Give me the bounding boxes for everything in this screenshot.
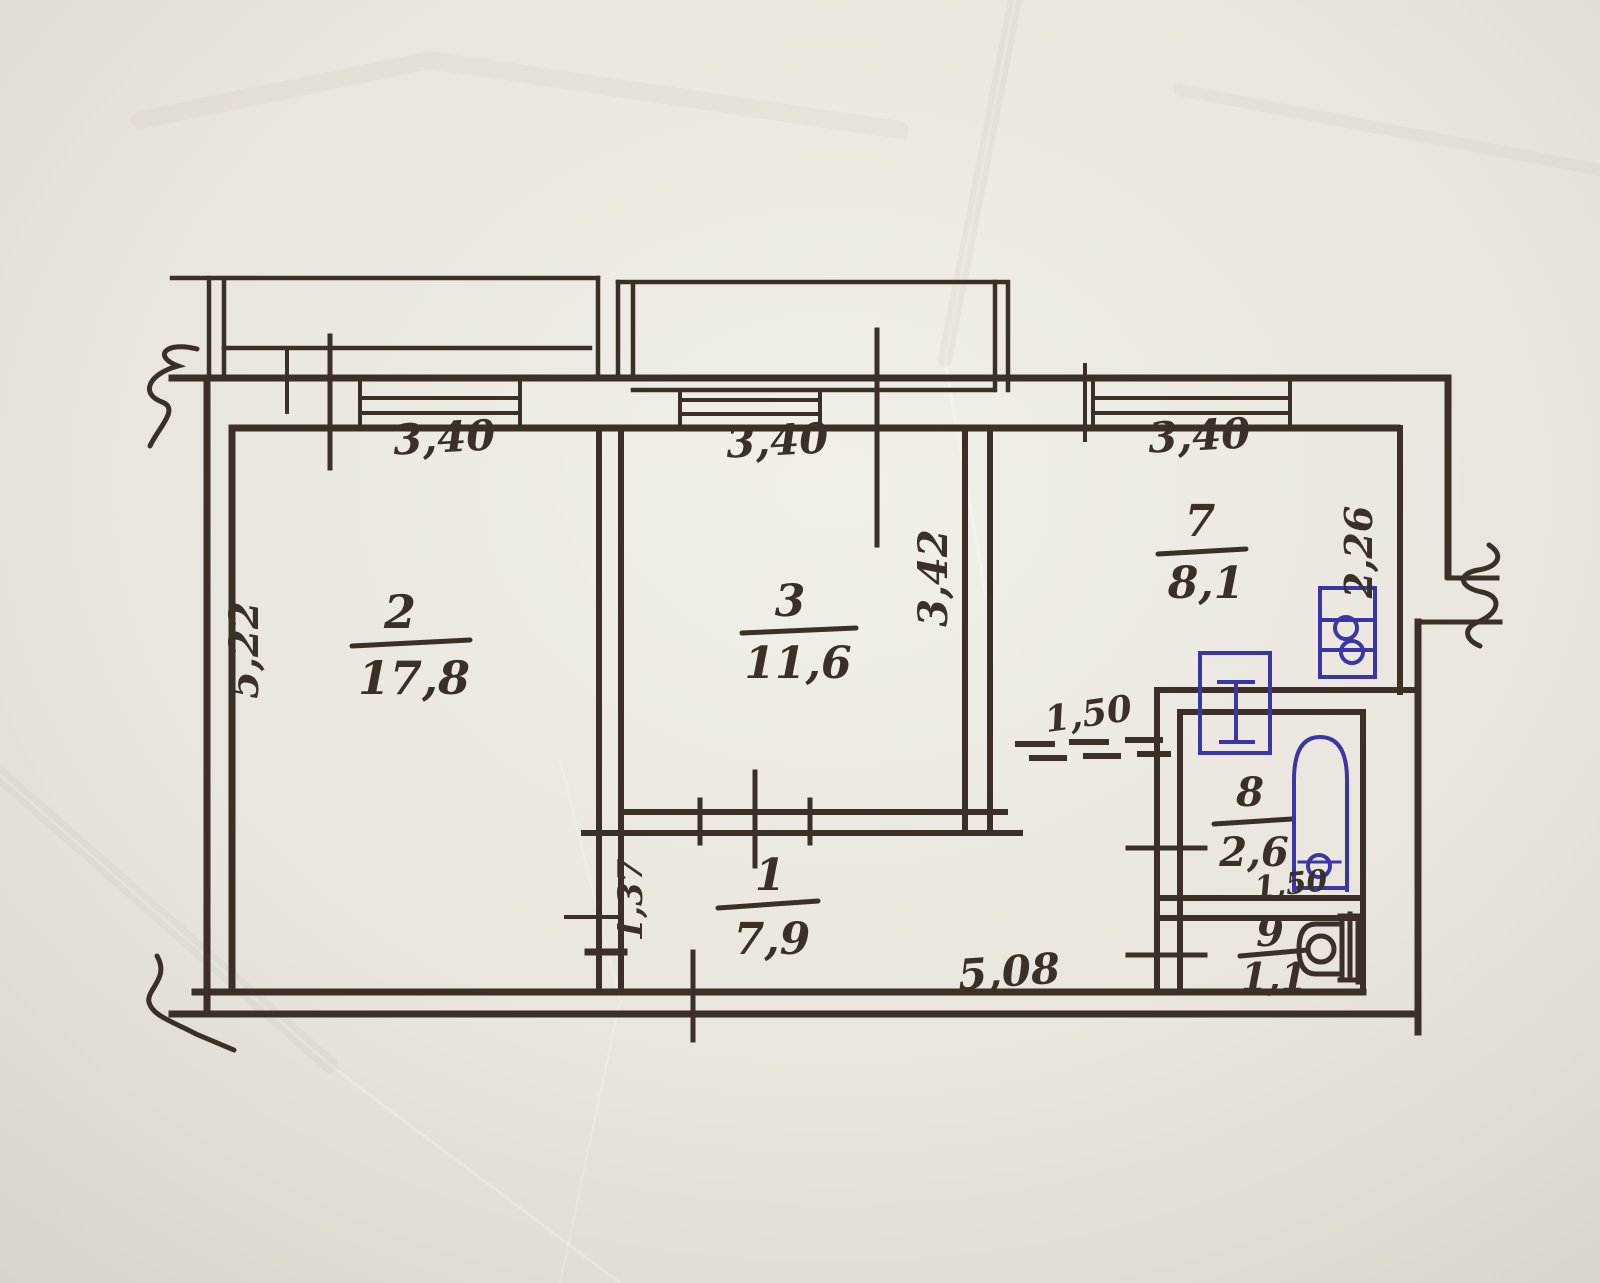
room3-number: 3	[775, 576, 806, 627]
dim-room3-right: 3,42	[910, 529, 957, 626]
dim-bottom: 5,08	[956, 944, 1061, 1000]
dim-left-wall: 5,22	[221, 601, 268, 698]
room9-area: 1,1	[1241, 954, 1307, 999]
room7-area: 8,1	[1167, 558, 1245, 609]
dim-top-window-3: 3,40	[1147, 408, 1252, 462]
room2-number: 2	[383, 585, 416, 639]
room1-area: 7,9	[734, 914, 811, 965]
dim-kitchen-right: 2,26	[1336, 506, 1381, 600]
floor-plan-photo: 3,40 3,40 3,40 5,22 3,42 2,26 1,37 1,50 …	[0, 0, 1600, 1283]
dim-top-window-1: 3,40	[392, 410, 497, 464]
room7-number: 7	[1185, 496, 1216, 547]
room9-number: 9	[1256, 909, 1284, 956]
room8-number: 8	[1235, 769, 1264, 816]
room3-area: 11,6	[744, 638, 851, 689]
dim-hall-left: 1,37	[611, 858, 651, 941]
dim-top-window-2: 3,40	[725, 413, 830, 467]
room2-area: 17,8	[358, 651, 470, 705]
floor-plan-svg: 3,40 3,40 3,40 5,22 3,42 2,26 1,37 1,50 …	[0, 0, 1600, 1283]
room1-number: 1	[755, 850, 786, 901]
